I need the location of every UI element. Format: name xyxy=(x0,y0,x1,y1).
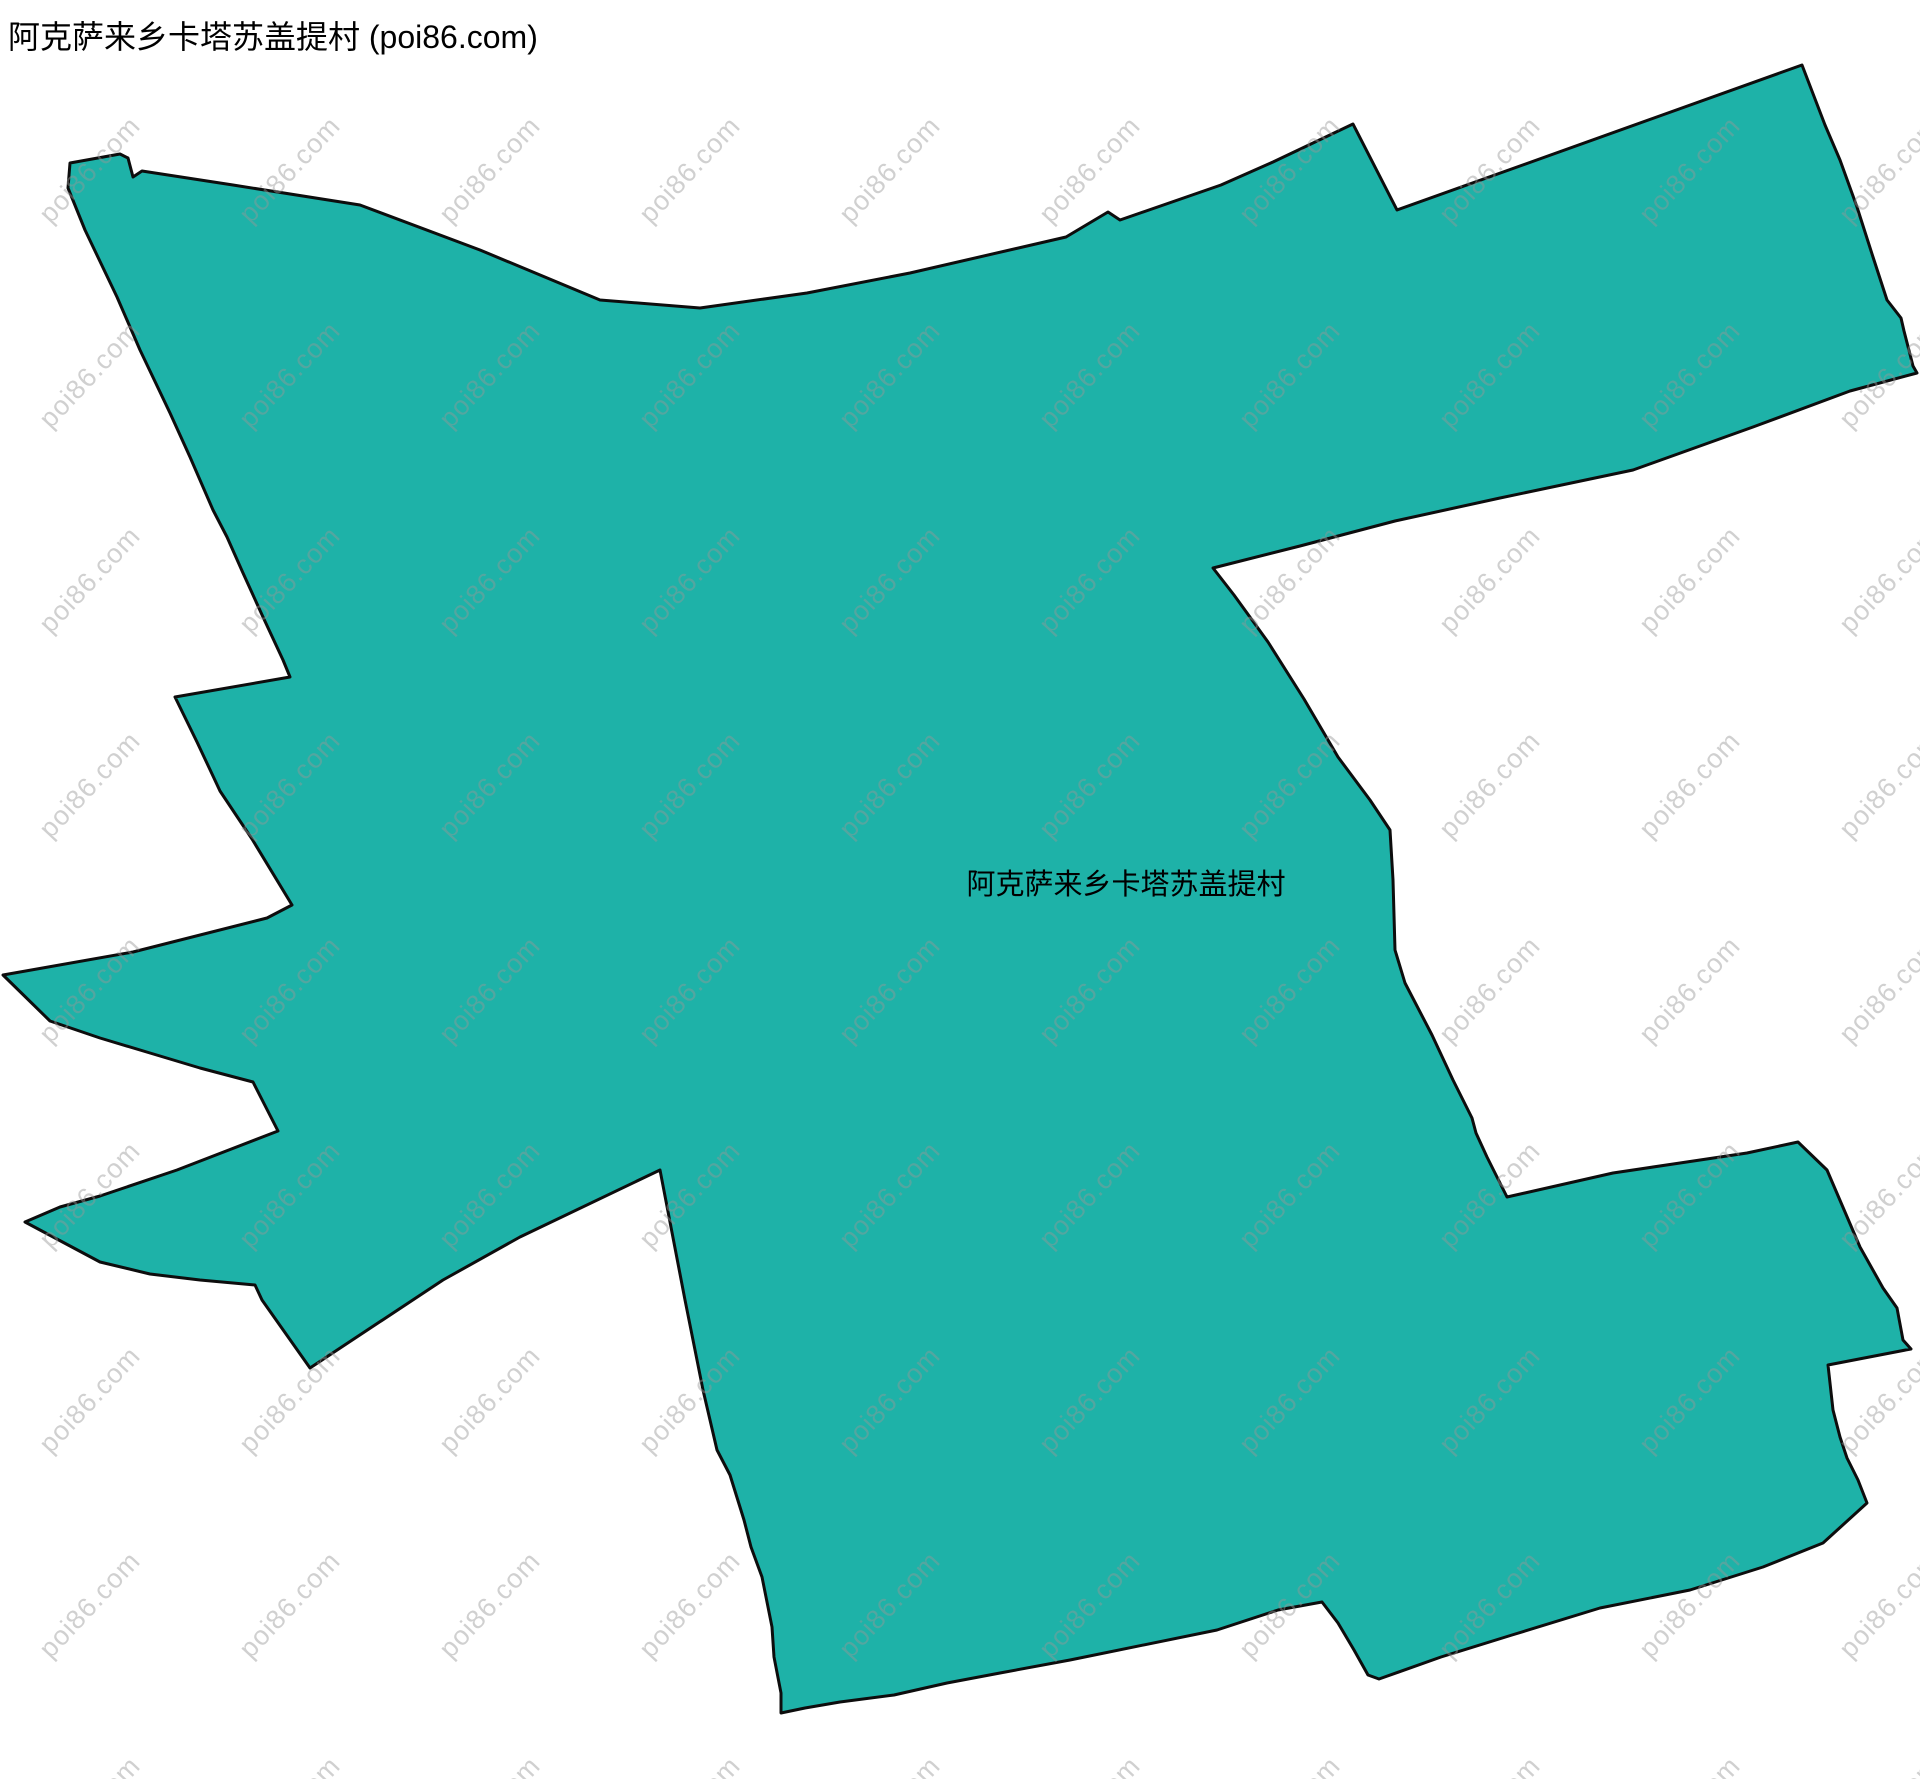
region-label: 阿克萨来乡卡塔苏盖提村 xyxy=(966,861,1285,903)
page-title: 阿克萨来乡卡塔苏盖提村 (poi86.com) xyxy=(8,12,538,58)
region-polygon[interactable] xyxy=(3,65,1917,1713)
map-page: poi86.compoi86.compoi86.compoi86.compoi8… xyxy=(0,0,1920,1779)
map-canvas[interactable] xyxy=(0,0,1920,1779)
